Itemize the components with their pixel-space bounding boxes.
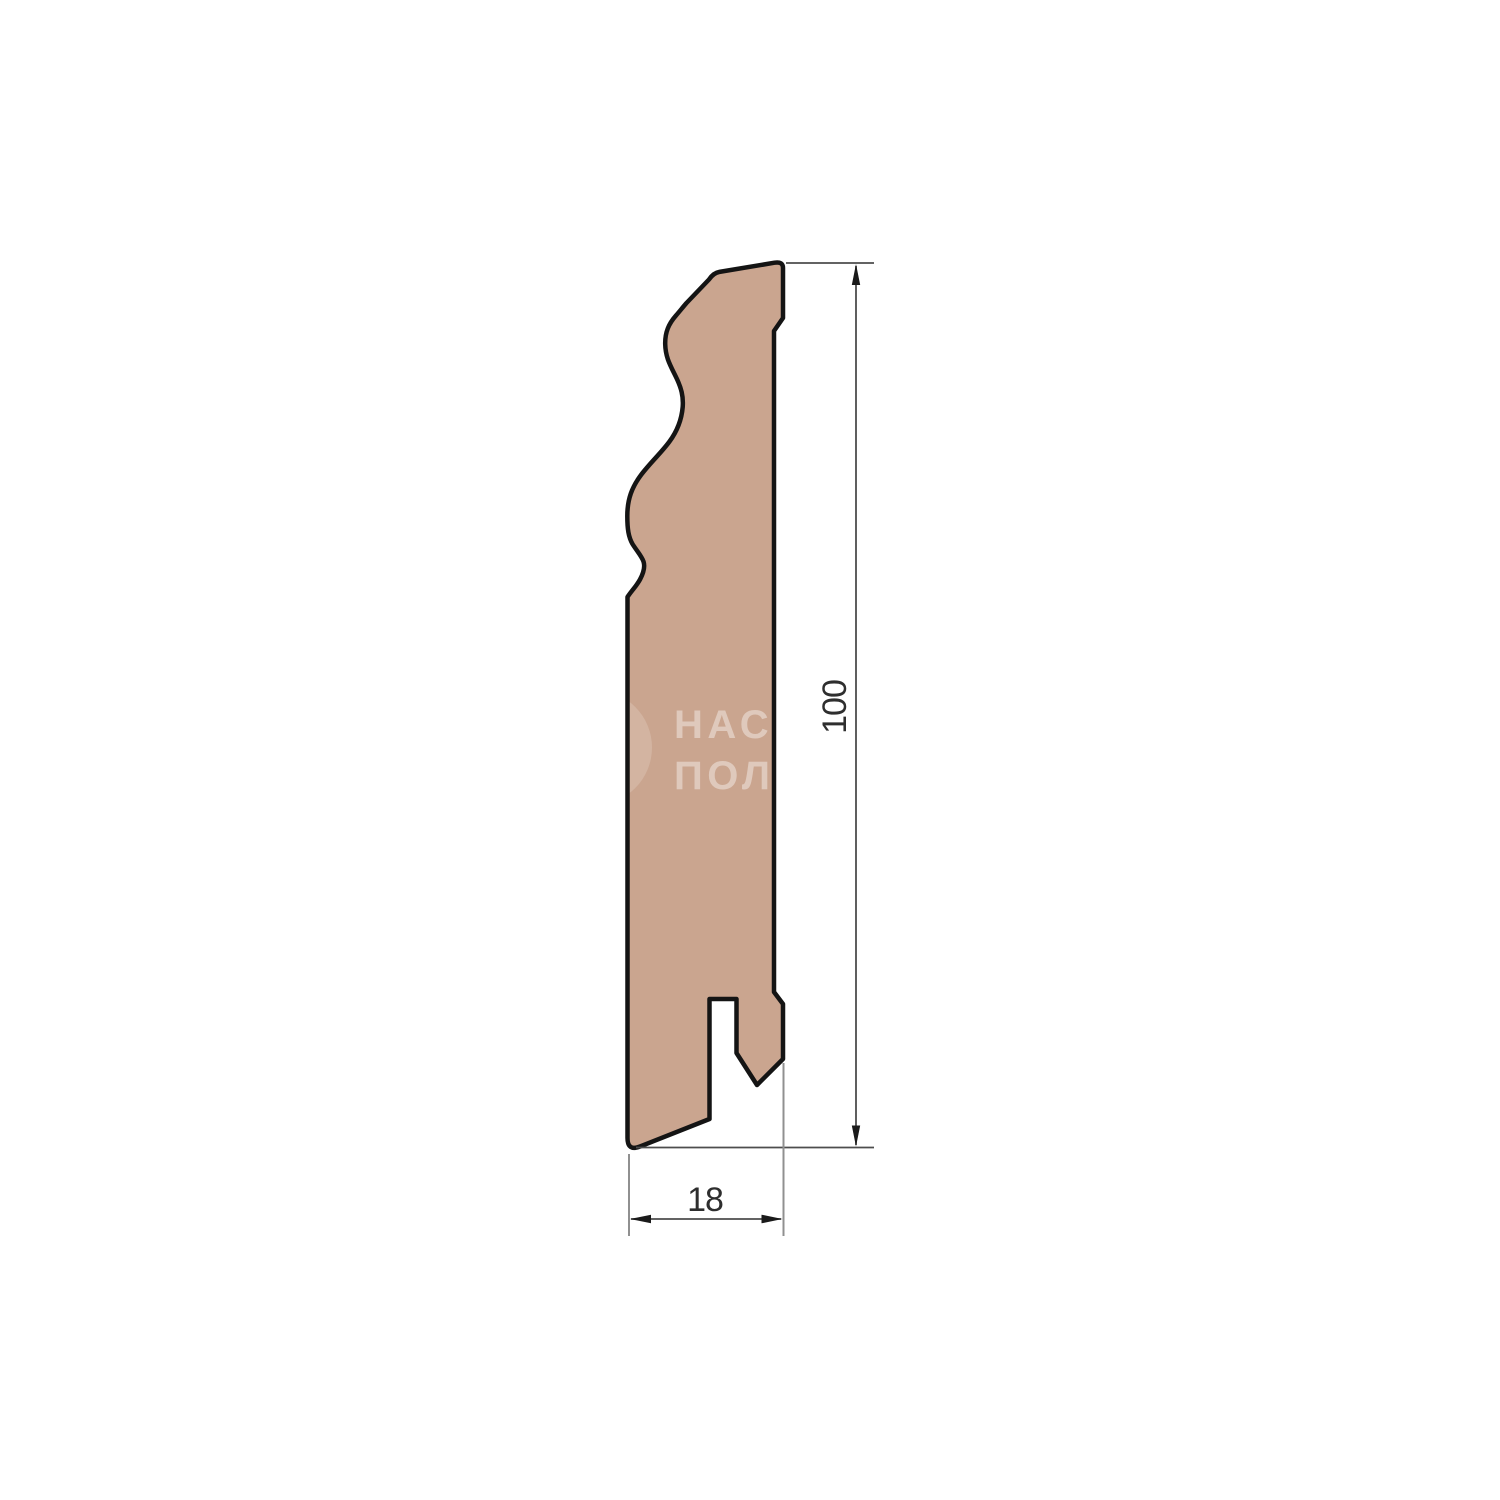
- watermark-circle-icon: [537, 690, 652, 805]
- height-dimension-label: 100: [816, 680, 854, 734]
- width-arrow-right-icon: [762, 1215, 783, 1224]
- watermark-text-line1: НАС: [674, 703, 773, 747]
- skirting-profile-technical-drawing: НАС ПОЛ 100 18: [0, 0, 1500, 1500]
- watermark-text-line2: ПОЛ: [674, 754, 774, 798]
- width-arrow-left-icon: [630, 1215, 651, 1224]
- height-arrow-up-icon: [852, 264, 860, 285]
- height-arrow-down-icon: [852, 1126, 860, 1147]
- width-dimension-label: 18: [687, 1181, 723, 1219]
- drawing-canvas: НАС ПОЛ 100 18: [0, 0, 1500, 1500]
